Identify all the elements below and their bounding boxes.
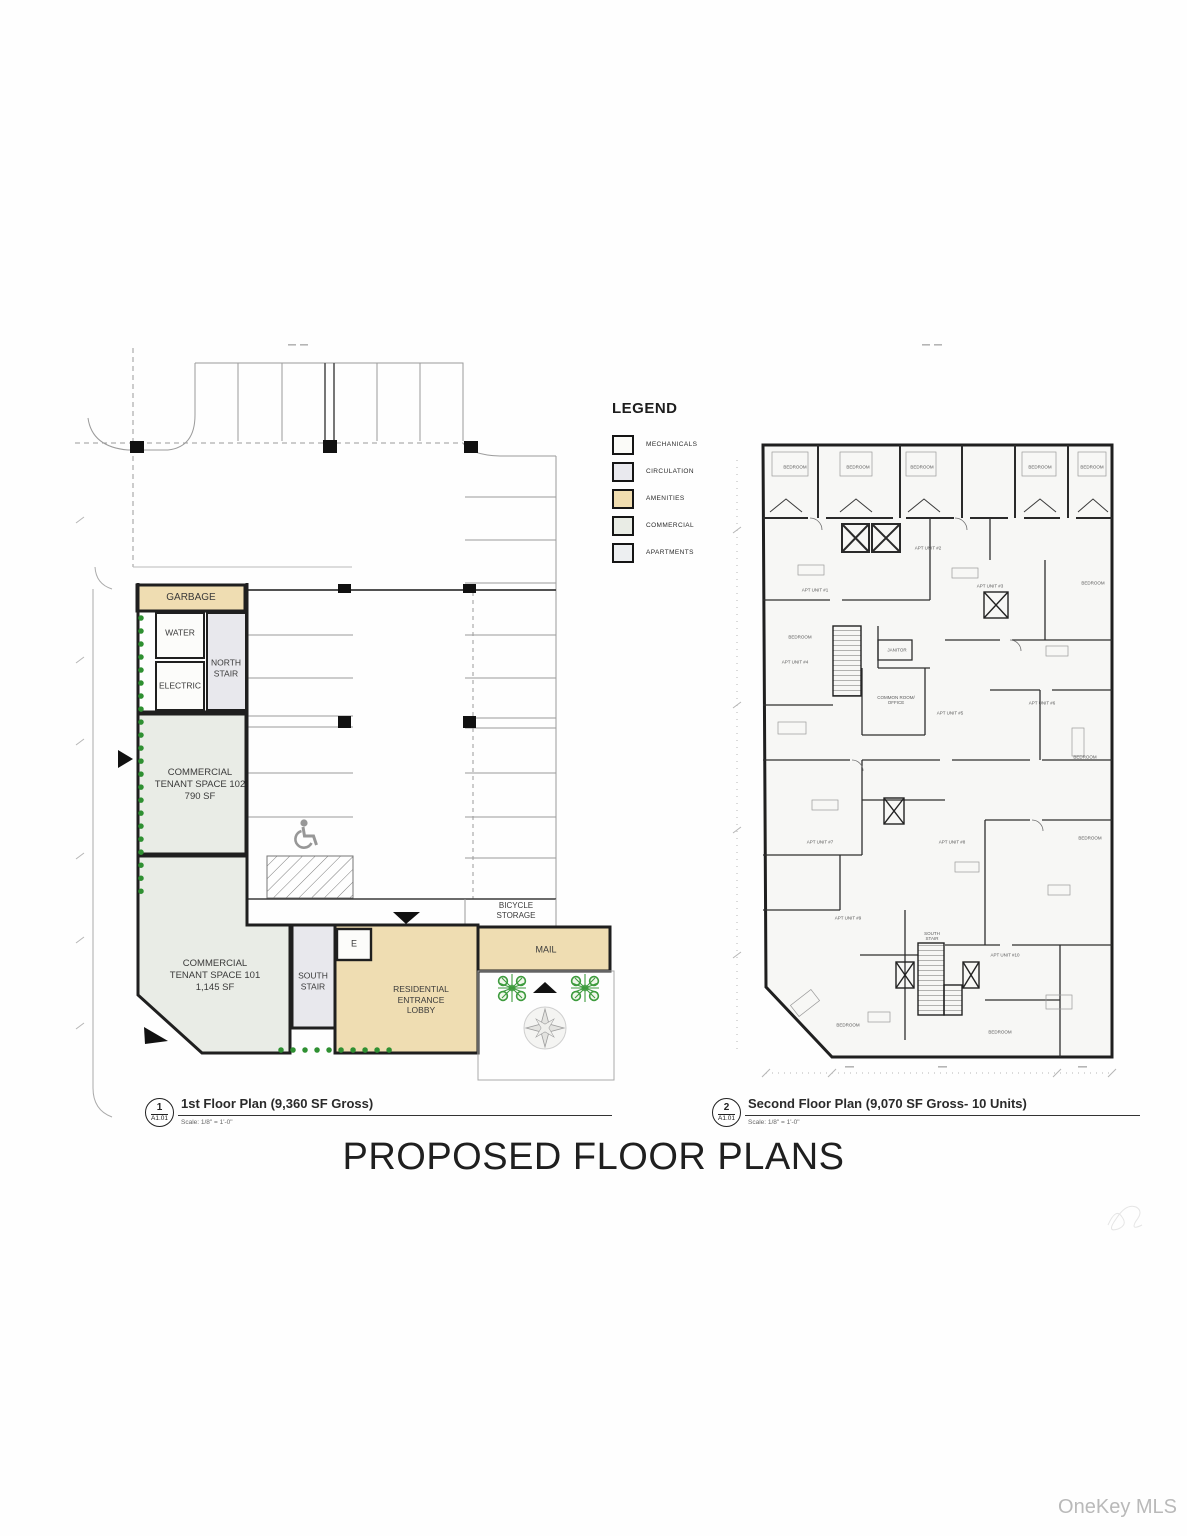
plan1-title-rule (178, 1115, 612, 1116)
legend-label: APARTMENTS (646, 549, 694, 556)
bedroom-label: BEDROOM (836, 1022, 859, 1027)
apt-unit-label: APT UNIT #7 (807, 839, 834, 844)
plan2-callout: 2 A1.01 (712, 1098, 741, 1127)
plan1-parking-stalls (246, 497, 556, 927)
callout-sheet: A1.01 (718, 1115, 735, 1123)
bedroom-label: BEDROOM (783, 464, 806, 469)
bedroom-label: BEDROOM (1078, 835, 1101, 840)
entrance-arrow-icon (533, 982, 557, 993)
plan2-scale: Scale: 1/8" = 1'-0" (748, 1119, 800, 1126)
entrance-arrow-icon (393, 912, 420, 924)
legend-swatch-mechanicals (612, 435, 634, 455)
stair-run (918, 943, 944, 1015)
apt-unit-label: APT UNIT #10 (990, 952, 1019, 957)
apt-unit-label: APT UNIT #6 (1029, 700, 1056, 705)
legend-item: APARTMENTS (612, 539, 752, 566)
room-label-commercial-101: COMMERCIAL TENANT SPACE 101 1,145 SF (170, 958, 260, 994)
plan2-title-rule (745, 1115, 1140, 1116)
apt-unit-label: APT UNIT #1 (802, 587, 829, 592)
room-label-elevator: E (351, 938, 357, 949)
floor-plan-sheet: GARBAGE WATER ELECTRIC NORTH STAIR COMME… (0, 0, 1187, 1536)
callout-number: 2 (718, 1103, 736, 1115)
plan1-callout: 1 A1.01 (145, 1098, 174, 1127)
stair-run (833, 626, 861, 696)
bedroom-label: BEDROOM (1073, 754, 1096, 759)
watermark: OneKey MLS (1058, 1496, 1177, 1519)
room-label-north-stair: NORTH STAIR (211, 657, 241, 678)
room-label-commercial-102: COMMERCIAL TENANT SPACE 102 790 SF (155, 767, 245, 803)
callout-sheet: A1.01 (151, 1115, 168, 1123)
legend-item: MECHANICALS (612, 431, 752, 458)
common-room-label: COMMON ROOM/ OFFICE (877, 695, 915, 705)
apt-unit-label: APT UNIT #8 (939, 839, 966, 844)
entrance-arrow-icon (118, 750, 133, 768)
room-label-bicycle-storage: BICYCLE STORAGE (497, 901, 536, 921)
room-label-lobby: RESIDENTIAL ENTRANCE LOBBY (393, 984, 449, 1016)
bedroom-label: BEDROOM (1080, 464, 1103, 469)
bedroom-label: BEDROOM (910, 464, 933, 469)
janitor-label: JANITOR (887, 647, 906, 652)
bedroom-label: BEDROOM (788, 634, 811, 639)
sheet-title: PROPOSED FLOOR PLANS (0, 1136, 1187, 1179)
legend-label: COMMERCIAL (646, 522, 694, 529)
plan1-scale: Scale: 1/8" = 1'-0" (181, 1119, 233, 1126)
apt-unit-label: APT UNIT #2 (915, 545, 942, 550)
legend-swatch-apartments (612, 543, 634, 563)
room-label-water: WATER (165, 628, 195, 639)
accessible-parking-icon (295, 819, 316, 847)
legend-title: LEGEND (612, 400, 752, 417)
room-label-garbage: GARBAGE (166, 592, 215, 605)
legend-swatch-amenities (612, 489, 634, 509)
apt-unit-label: APT UNIT #5 (937, 710, 964, 715)
legend-label: CIRCULATION (646, 468, 694, 475)
room-label-electric: ELECTRIC (159, 681, 201, 692)
legend-swatch-commercial (612, 516, 634, 536)
apt-unit-label: APT UNIT #9 (835, 915, 862, 920)
south-stair-label: SOUTH STAIR (924, 931, 940, 941)
bedroom-label: BEDROOM (1081, 580, 1104, 585)
entrance-arrow-icon (144, 1027, 168, 1044)
room-label-south-stair: SOUTH STAIR (298, 970, 328, 991)
callout-number: 1 (151, 1103, 169, 1115)
plan1-title: 1st Floor Plan (9,360 SF Gross) (181, 1096, 373, 1111)
legend-label: AMENITIES (646, 495, 685, 502)
bedroom-label: BEDROOM (846, 464, 869, 469)
apt-unit-label: APT UNIT #4 (782, 659, 809, 664)
legend-item: COMMERCIAL (612, 512, 752, 539)
room-label-mail: MAIL (535, 944, 556, 955)
no-parking-hatch (267, 856, 353, 898)
apt-unit-label: APT UNIT #3 (977, 583, 1004, 588)
legend-item: AMENITIES (612, 485, 752, 512)
legend-label: MECHANICALS (646, 441, 697, 448)
legend-swatch-circulation (612, 462, 634, 482)
legend-item: CIRCULATION (612, 458, 752, 485)
bedroom-label: BEDROOM (988, 1029, 1011, 1034)
bedroom-label: BEDROOM (1028, 464, 1051, 469)
stair-run (944, 985, 962, 1015)
plan2-title: Second Floor Plan (9,070 SF Gross- 10 Un… (748, 1096, 1027, 1111)
compass-rose-icon (524, 1007, 566, 1049)
legend: LEGEND MECHANICALS CIRCULATION AMENITIES… (612, 400, 752, 566)
scan-scribble (1108, 1206, 1142, 1230)
